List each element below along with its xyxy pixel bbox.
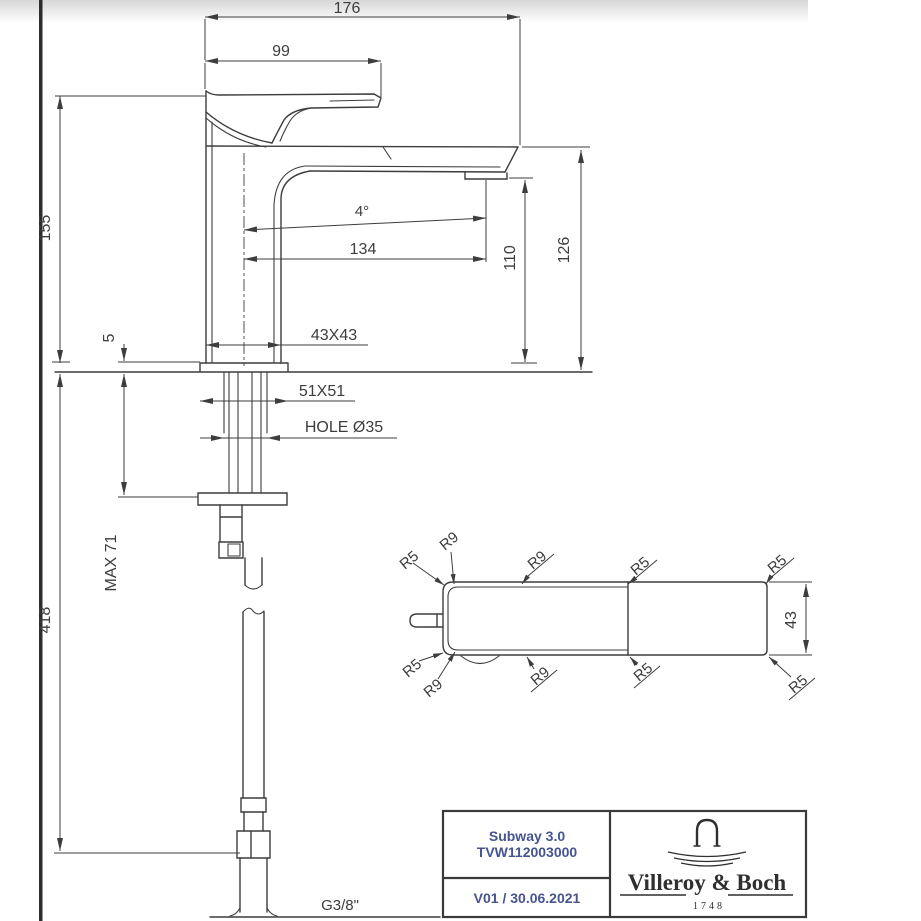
- dim-label-126: 126: [556, 237, 573, 264]
- page-frame: [0, 0, 808, 921]
- dimension-110: 110: [502, 178, 537, 363]
- dim-label-99: 99: [272, 43, 290, 60]
- dim-label-5: 5: [101, 333, 118, 342]
- callout-r9-top-left: R9: [437, 529, 463, 554]
- page-left-border: [39, 0, 43, 921]
- faucet-technical-drawing: 176 99 155 5 MAX 71 418: [0, 0, 921, 921]
- callout-r5-top-mid: R5: [628, 554, 654, 579]
- dimension-51x51: 51X51: [200, 383, 355, 401]
- revision-date: V01 / 30.06.2021: [474, 890, 581, 906]
- radius-callouts: R5 R9 R9 R5 R5 R5 R9 R9 R5 R5: [397, 529, 815, 701]
- dimension-126: 126: [522, 147, 590, 370]
- dim-label-43x43: 43X43: [311, 327, 357, 344]
- brand-year: 1748: [693, 901, 725, 912]
- callout-r9-bottom-mid: R9: [528, 664, 554, 689]
- dim-label-thread: G3/8": [321, 897, 359, 914]
- dim-label-max71: MAX 71: [103, 534, 120, 591]
- dimension-155: 155: [37, 96, 206, 363]
- brand-name: Villeroy & Boch: [628, 870, 787, 895]
- top-shadow-band: [0, 0, 808, 23]
- dim-label-110: 110: [502, 245, 519, 271]
- title-block: Subway 3.0 TVW112003000 V01 / 30.06.2021…: [443, 811, 806, 917]
- faucet-side-view: [55, 91, 592, 917]
- faucet-top-view: 43 R5 R9 R9 R5 R5 R5 R9 R9: [397, 529, 815, 701]
- villeroy-boch-logo-icon: [668, 820, 746, 866]
- dimension-43x43: 43X43: [206, 327, 368, 345]
- dim-label-hole: HOLE Ø35: [305, 419, 383, 436]
- product-code: TVW112003000: [477, 844, 578, 860]
- callout-r9-bottom-left: R9: [421, 676, 447, 701]
- callout-r9-top-mid: R9: [525, 548, 551, 573]
- dimension-418: 418: [37, 374, 240, 853]
- dimension-5: 5: [101, 333, 200, 362]
- technical-drawing-page: 176 99 155 5 MAX 71 418: [0, 0, 921, 921]
- callout-r5-top-left: R5: [397, 548, 423, 573]
- dimension-max71: MAX 71: [103, 374, 198, 591]
- dim-label-51x51: 51X51: [299, 383, 345, 400]
- dim-label-418: 418: [37, 607, 54, 634]
- dim-label-topview-43: 43: [783, 611, 800, 629]
- dim-label-angle: 4°: [355, 203, 369, 220]
- dim-label-155: 155: [37, 215, 54, 242]
- dim-label-134: 134: [350, 241, 377, 258]
- product-name: Subway 3.0: [489, 828, 565, 844]
- dimension-99: 99: [205, 43, 381, 97]
- callout-r5-bottom-mid: R5: [631, 660, 657, 685]
- dimension-topview-43: 43: [769, 582, 812, 655]
- dim-label-176: 176: [334, 0, 361, 17]
- callout-r5-top-right: R5: [765, 552, 791, 577]
- callout-r5-bottom-left: R5: [400, 656, 426, 681]
- dimensions-side-view: 176 99 155 5 MAX 71 418: [37, 0, 590, 914]
